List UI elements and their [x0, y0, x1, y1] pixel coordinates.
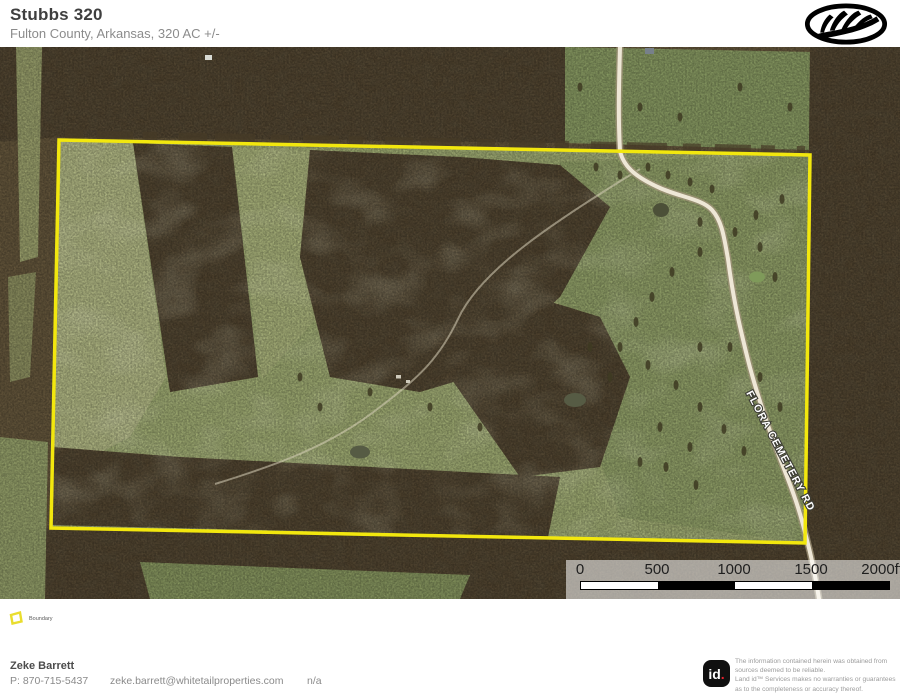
map-canvas: FLORA CEMETERY RD 0 500 1000 1500 2000ft [0, 47, 900, 599]
land-id-logo-text: id [708, 667, 720, 681]
header: Stubbs 320 Fulton County, Arkansas, 320 … [0, 0, 900, 47]
land-id-logo-dot: . [721, 667, 725, 681]
footer: Boundary Zeke Barrett P: 870-715-5437 ze… [0, 599, 900, 696]
disclaimer-line: Land id™ Services makes no warranties or… [735, 675, 900, 684]
disclaimer-line: The information contained herein was obt… [735, 657, 900, 666]
agent-email: zeke.barrett@whitetailproperties.com [110, 675, 283, 687]
scale-tick-label: 1500 [794, 561, 827, 578]
scale-tick-label: 2000ft [861, 561, 900, 578]
farm-structure [396, 375, 401, 379]
scale-tick-label: 500 [644, 561, 669, 578]
scale-tick-label: 1000 [717, 561, 750, 578]
agent-phone: P: 870-715-5437 [10, 675, 88, 687]
agent-extra: n/a [307, 675, 322, 687]
disclaimer-line: as to the completeness or accuracy there… [735, 685, 900, 694]
scale-tick-label: 0 [576, 561, 584, 578]
land-id-logo: id. [703, 660, 730, 687]
agent-name: Zeke Barrett [10, 660, 74, 672]
legend-item-boundary [8, 610, 24, 626]
scale-bar: 0 500 1000 1500 2000ft [566, 560, 900, 599]
building [645, 48, 654, 54]
disclaimer-line: sources deemed to be reliable. [735, 666, 900, 675]
page-title: Stubbs 320 [10, 5, 103, 25]
farm-structure [406, 380, 410, 383]
aerial-imagery: FLORA CEMETERY RD [0, 47, 900, 599]
legend-label: Boundary [29, 616, 53, 622]
whitetail-antler-logo-icon [804, 3, 888, 45]
building [205, 55, 212, 60]
scale-bar-segments [580, 581, 890, 590]
boundary-polygon-icon [8, 610, 24, 626]
page-subtitle: Fulton County, Arkansas, 320 AC +/- [10, 26, 220, 41]
disclaimer-text: The information contained herein was obt… [735, 657, 900, 694]
